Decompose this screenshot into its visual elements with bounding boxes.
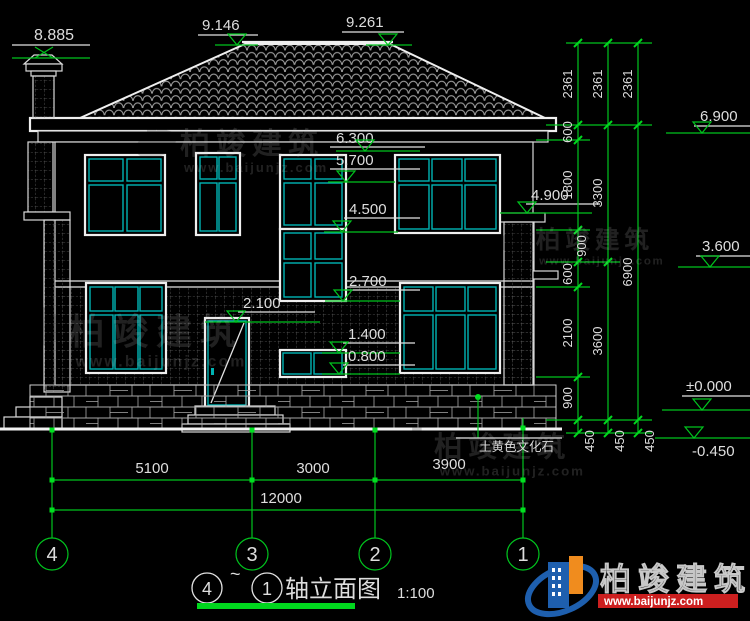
elev-label: 4.500 (349, 201, 387, 218)
chimney-ledge (24, 212, 70, 220)
window-2f-right (395, 155, 500, 233)
axis-bubbles: 4 3 2 1 (36, 538, 539, 570)
dim-segment: 3600 (590, 327, 605, 356)
elev-label: 8.885 (34, 27, 74, 44)
watermark-brand: 柏竣建筑 (536, 225, 654, 254)
dim-roof-height: 2361 (560, 70, 575, 99)
elev-eave-top: 6.900 (666, 108, 750, 133)
title-axis-to: 1 (262, 579, 272, 599)
elev-ridge-left: 9.146 (198, 17, 258, 45)
elev-site-ground: -0.450 (655, 427, 750, 460)
elev-label: 3.600 (702, 238, 740, 255)
chimney-shaft-upper (33, 76, 54, 118)
logo-building-orange (569, 556, 583, 594)
dim-bay-3-2: 3000 (296, 460, 329, 477)
watermark-d: 柏竣建筑 www.baijunjz.com (388, 427, 585, 478)
corner-pilaster (44, 220, 70, 392)
house-facade (0, 42, 562, 432)
roof-tile-surface (80, 44, 545, 118)
porch-column-ledge (533, 271, 558, 279)
elev-label: 6.300 (336, 130, 374, 147)
watermark-site: www.baijunjz.com (439, 463, 585, 478)
drawing-scale: 1:100 (397, 585, 435, 602)
chimney-shaft-mid (28, 142, 53, 212)
dim-total-width: 12000 (260, 490, 302, 507)
chimney-neck (31, 71, 56, 76)
brand-logo: 柏竣建筑 www.baijunjz.com (521, 556, 750, 621)
elev-label: 1.400 (348, 326, 386, 343)
stone-plinth (30, 385, 556, 429)
elev-label: 2.100 (243, 295, 281, 312)
dim-segment: 3300 (590, 179, 605, 208)
chimney-cap-band (26, 64, 62, 71)
axis-bubble-4: 4 (46, 544, 57, 566)
dim-plinth: 450 (612, 430, 627, 452)
elev-label: ±0.000 (686, 378, 732, 395)
elev-label: -0.450 (692, 443, 735, 460)
dim-plinth: 450 (582, 430, 597, 452)
axis-bubble-2: 2 (369, 544, 380, 566)
elev-floor2: 3.600 (678, 238, 750, 267)
hipped-roof (80, 42, 545, 118)
watermark-site: www.baijunjz.com (183, 160, 328, 175)
watermark-site: www.baijunjz.com (75, 353, 247, 370)
watermark-site: www.baijunjz.com (538, 256, 664, 268)
dim-plinth: 450 (642, 430, 657, 452)
axis-bubble-3: 3 (246, 544, 257, 566)
dim-segment: 2100 (560, 319, 575, 348)
logo-brand-text: 柏竣建筑 (600, 562, 750, 597)
watermark-brand: 柏竣建筑 (69, 312, 244, 352)
elev-ground-floor: ±0.000 (662, 378, 750, 410)
dim-roof-height: 2361 (590, 70, 605, 99)
bottom-dimension-labels: 5100 3000 3900 12000 (135, 456, 465, 507)
elev-label: 5.700 (336, 152, 374, 169)
elevation-drawing-canvas: 8.885 9.146 9.261 6.300 5.700 4.500 4.90… (0, 0, 750, 621)
elev-chimney-top: 8.885 (12, 27, 90, 58)
dim-segment: 900 (560, 387, 575, 409)
window-2f-left (85, 155, 165, 235)
title-block: 4 ~ 1 轴立面图 1:100 (192, 564, 435, 609)
axis-bubble-1: 1 (517, 544, 528, 566)
porch-beam-cap (497, 213, 545, 222)
title-axis-from: 4 (202, 579, 212, 599)
elev-ridge-right: 9.261 (342, 14, 412, 45)
chimney-cap (24, 55, 62, 64)
elev-label: 9.261 (346, 14, 384, 31)
drawing-title: 轴立面图 (285, 576, 381, 603)
watermark-brand: 柏竣建筑 (180, 127, 324, 161)
elev-label: 2.700 (349, 273, 387, 290)
dim-segment: 600 (560, 121, 575, 143)
elev-label: 9.146 (202, 17, 240, 34)
watermark-brand: 柏竣建筑 (434, 430, 571, 463)
logo-site-text: www.baijunjz.com (603, 596, 703, 608)
window-1f-right (400, 283, 500, 373)
dim-roof-height: 2361 (620, 70, 635, 99)
title-underline (197, 603, 355, 609)
dim-segment: 1800 (560, 171, 575, 200)
elevation-drawing: 8.885 9.146 9.261 6.300 5.700 4.500 4.90… (0, 0, 750, 621)
title-tilde: ~ (230, 564, 241, 584)
dim-bay-4-3: 5100 (135, 460, 168, 477)
elev-label: 0.800 (348, 348, 386, 365)
